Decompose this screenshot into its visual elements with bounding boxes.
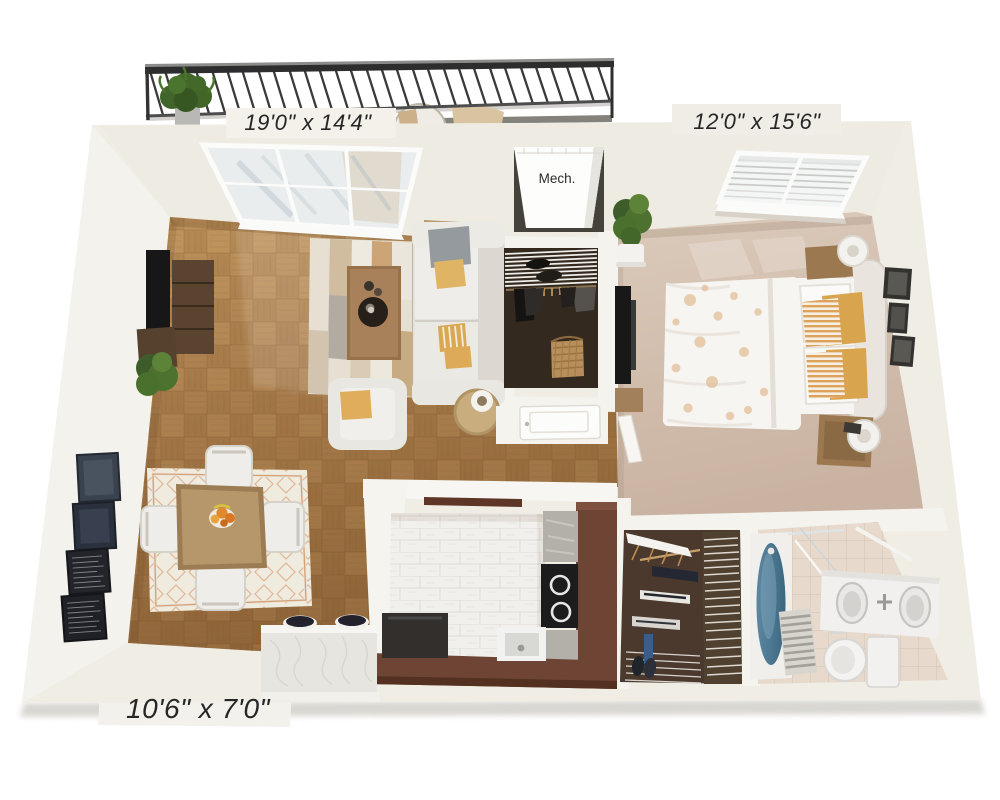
svg-text:19'0" x 14'4": 19'0" x 14'4" [244,110,372,135]
svg-text:Mech.: Mech. [539,171,576,186]
svg-text:10'6" x 7'0": 10'6" x 7'0" [126,693,271,724]
svg-text:12'0" x 15'6": 12'0" x 15'6" [693,109,821,134]
